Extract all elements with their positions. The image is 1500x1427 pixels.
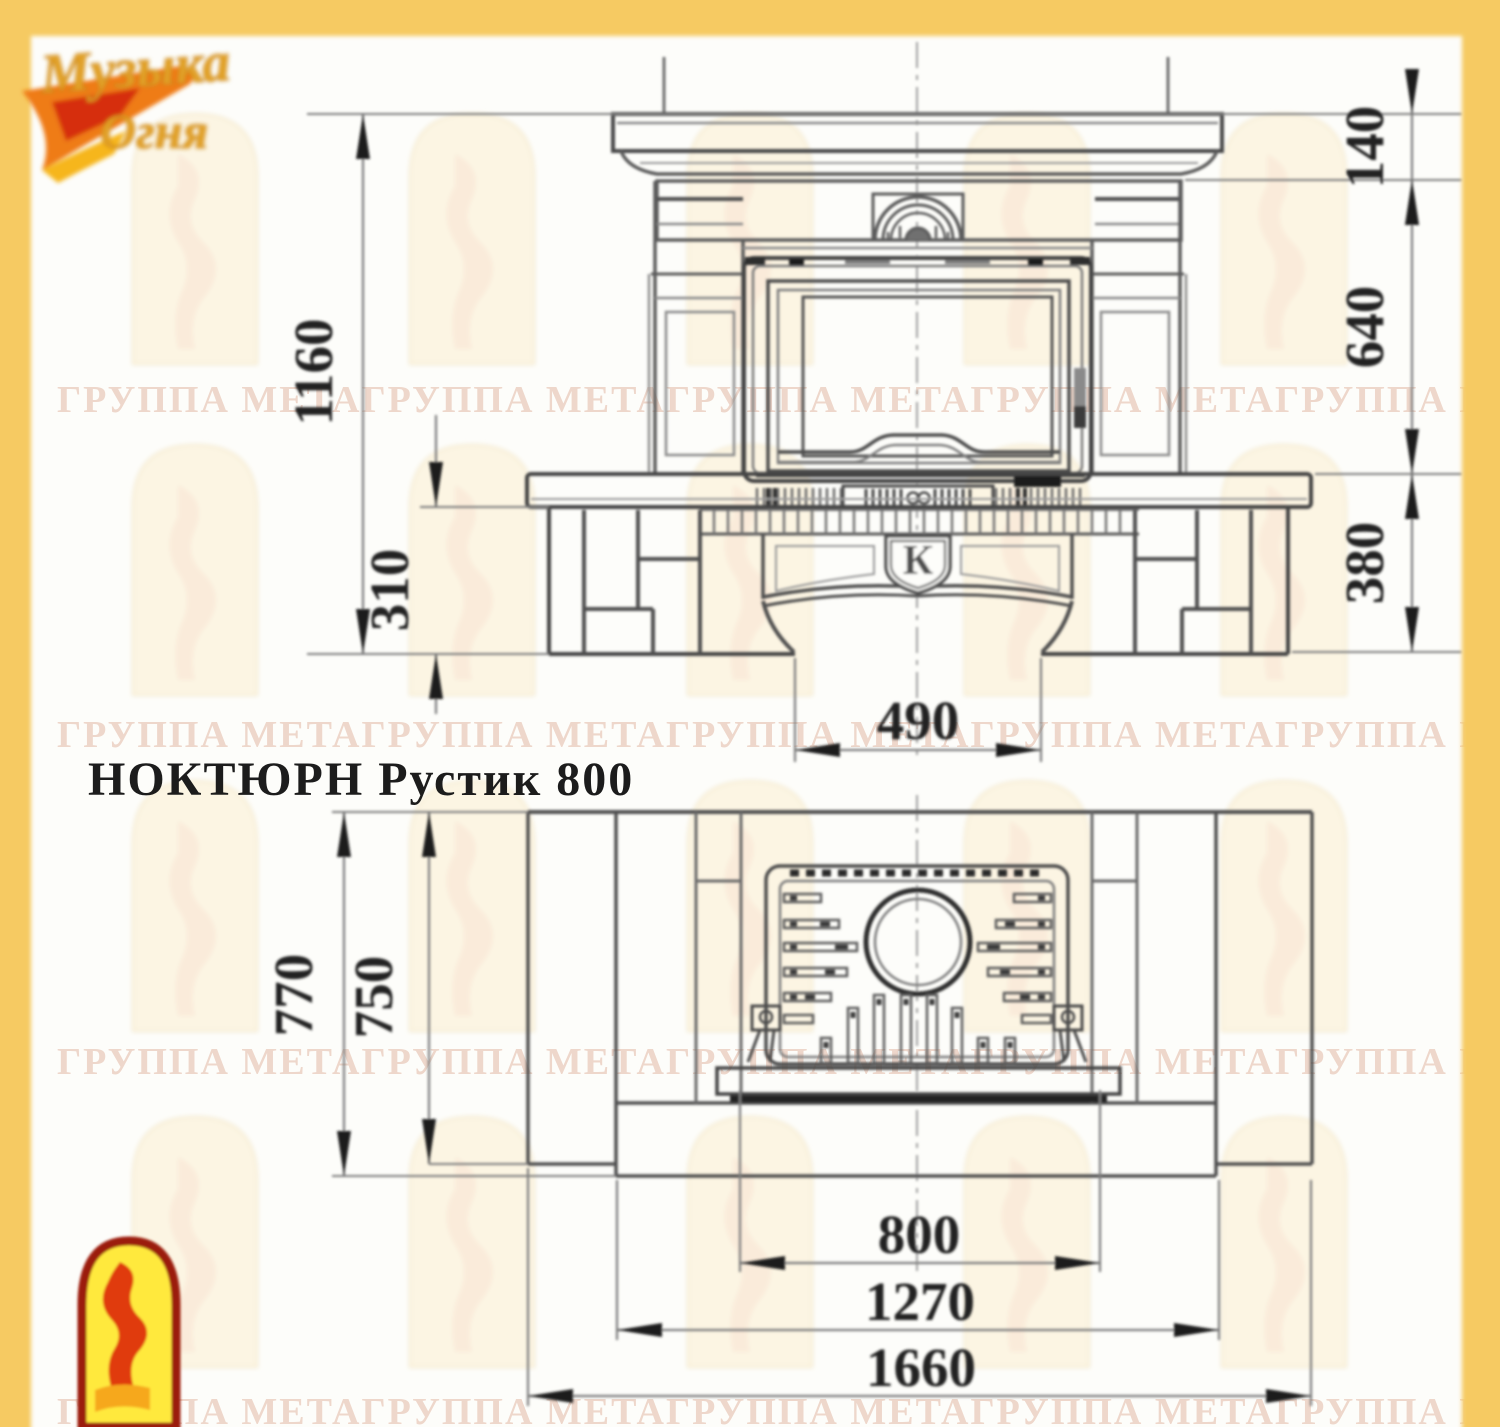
svg-text:1270: 1270: [865, 1271, 975, 1332]
svg-text:1660: 1660: [866, 1337, 976, 1398]
svg-text:ГРУППА МЕТАГРУППА МЕТАГРУППА М: ГРУППА МЕТАГРУППА МЕТАГРУППА МЕТАГРУППА …: [57, 1041, 1500, 1083]
svg-text:1160: 1160: [283, 319, 344, 426]
svg-text:ГРУППА МЕТАГРУППА МЕТАГРУППА М: ГРУППА МЕТАГРУППА МЕТАГРУППА МЕТАГРУППА …: [57, 714, 1500, 756]
svg-text:140: 140: [1334, 106, 1395, 189]
svg-text:490: 490: [877, 690, 960, 751]
svg-text:800: 800: [878, 1204, 961, 1265]
svg-text:НОКТЮРН Рустик 800: НОКТЮРН Рустик 800: [88, 753, 634, 806]
svg-text:750: 750: [343, 956, 404, 1039]
svg-text:380: 380: [1334, 522, 1395, 605]
svg-text:640: 640: [1334, 286, 1395, 369]
svg-text:Музыка: Музыка: [38, 31, 232, 106]
svg-text:310: 310: [359, 549, 420, 632]
svg-text:770: 770: [263, 954, 324, 1037]
svg-text:Огня: Огня: [100, 103, 208, 159]
svg-text:К: К: [903, 538, 934, 584]
